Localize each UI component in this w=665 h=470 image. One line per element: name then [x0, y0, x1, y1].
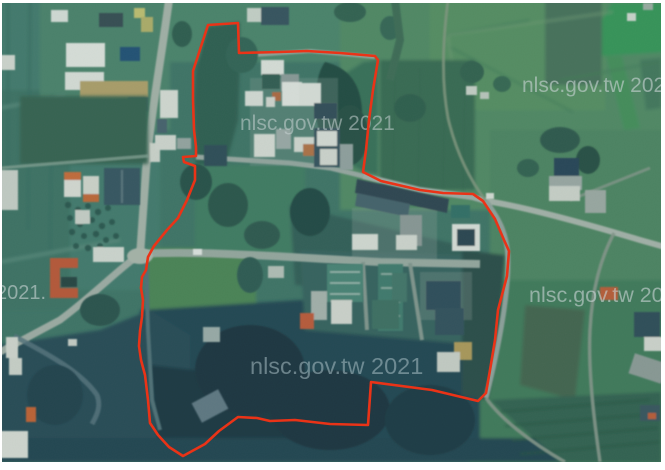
svg-text:nlsc.gov.tw 2021: nlsc.gov.tw 2021 [240, 112, 395, 135]
svg-text:nlsc.gov.tw 20: nlsc.gov.tw 20 [529, 283, 664, 307]
svg-text:2021.: 2021. [0, 282, 46, 304]
svg-text:nlsc.gov.tw 2021: nlsc.gov.tw 2021 [250, 353, 423, 379]
svg-text:nlsc.gov.tw 2021: nlsc.gov.tw 2021 [522, 74, 665, 97]
